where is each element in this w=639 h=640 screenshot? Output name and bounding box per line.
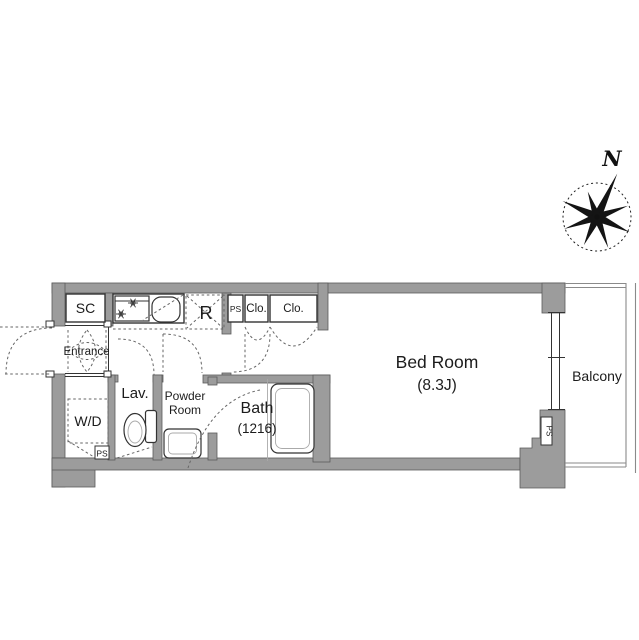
label-balcony: Balcony <box>572 368 622 384</box>
label-pipe-space-lower: PS <box>96 449 108 459</box>
toilet-icon <box>117 411 157 459</box>
lavatory-dashed-line <box>117 447 152 458</box>
wall-bath-bedroom <box>313 375 330 462</box>
washbasin-icon <box>164 429 201 458</box>
kitchen-counter <box>113 294 184 329</box>
label-bedroom-size: (8.3J) <box>417 377 457 394</box>
closet-1-bifold-arc <box>245 327 270 340</box>
label-lavatory: Lav. <box>121 385 148 402</box>
door-post <box>104 371 111 377</box>
wall-left-upper <box>52 283 65 326</box>
label-powder-room-2: Room <box>169 403 201 417</box>
entrance-door-arc <box>6 328 52 374</box>
wall-powder-bath-upper <box>208 377 217 385</box>
label-powder-room-1: Powder <box>165 389 206 403</box>
label-entrance: Entrance <box>63 346 109 358</box>
label-bath-size: (1216) <box>237 421 276 436</box>
label-refrigerator: R <box>200 303 213 323</box>
floor-plan-drawing: SC Entrance W/D PS Lav. Powder Room Bath… <box>0 0 639 640</box>
toilet-tank <box>146 411 157 443</box>
label-pipe-space-upper: PS <box>230 304 242 314</box>
floor-plan-page: SC Entrance W/D PS Lav. Powder Room Bath… <box>0 0 639 640</box>
label-pipe-space-right: PS <box>545 426 554 437</box>
bedroom-door-arc <box>232 334 270 372</box>
bathtub-outer <box>271 384 314 453</box>
label-closet-2: Clo. <box>283 303 303 315</box>
label-bath: Bath <box>241 400 274 417</box>
label-bedroom: Bed Room <box>396 352 479 372</box>
wall-powder-bath-lower <box>208 433 217 460</box>
bedroom-window <box>548 313 565 411</box>
wall-bottom-band <box>52 458 520 470</box>
closet-2-bifold-arc <box>270 327 317 346</box>
powder-door-arc <box>163 334 202 373</box>
wall-bath-top <box>203 375 330 383</box>
wall-closet-bedroom <box>318 283 328 330</box>
compass-rose: N <box>548 146 639 263</box>
sink-icon <box>152 297 180 322</box>
bathtub-icon <box>268 379 315 461</box>
stove-icon <box>115 296 149 321</box>
label-shoe-closet: SC <box>76 300 95 316</box>
door-post <box>46 321 54 327</box>
lavatory-door-arc <box>118 339 154 375</box>
label-washer-dryer: W/D <box>74 413 101 429</box>
wall-right-upper <box>542 283 565 313</box>
label-closet-1: Clo. <box>246 303 266 315</box>
compass-north-label: N <box>601 146 622 171</box>
wall-top <box>52 283 565 293</box>
toilet-bowl <box>124 414 146 447</box>
